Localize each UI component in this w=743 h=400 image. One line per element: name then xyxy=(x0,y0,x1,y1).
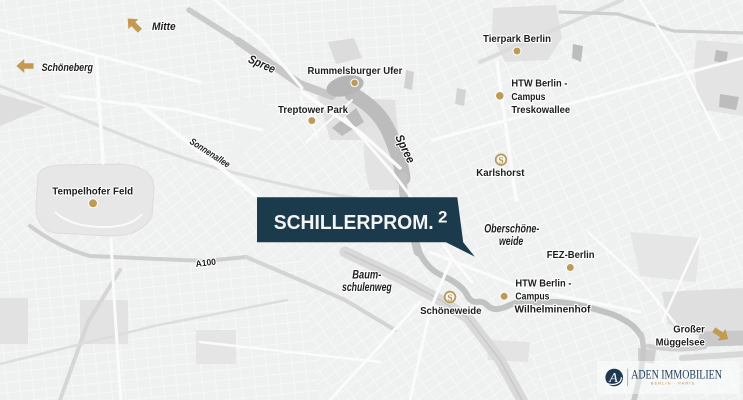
svg-text:Baum-: Baum- xyxy=(352,267,381,281)
svg-text:2: 2 xyxy=(438,208,447,227)
svg-text:Mitte: Mitte xyxy=(152,21,176,33)
svg-text:Campus: Campus xyxy=(511,92,545,103)
svg-text:S: S xyxy=(498,157,503,167)
svg-text:schulenweg: schulenweg xyxy=(342,280,392,294)
svg-text:Tempelhofer Feld: Tempelhofer Feld xyxy=(52,187,133,198)
svg-text:BERLIN · PARIS: BERLIN · PARIS xyxy=(651,381,695,386)
svg-text:ADEN IMMOBILIEN: ADEN IMMOBILIEN xyxy=(631,368,722,382)
svg-text:Treptower Park: Treptower Park xyxy=(278,105,348,116)
svg-text:Wilhelminenhof: Wilhelminenhof xyxy=(515,305,592,316)
svg-text:FEZ-Berlin: FEZ-Berlin xyxy=(547,250,595,261)
svg-text:SCHILLERPROM.: SCHILLERPROM. xyxy=(274,212,434,234)
svg-text:HTW Berlin -: HTW Berlin - xyxy=(511,79,567,90)
svg-text:weide: weide xyxy=(499,234,524,248)
svg-text:Rummelsburger Ufer: Rummelsburger Ufer xyxy=(308,66,403,77)
svg-text:Müggelsee: Müggelsee xyxy=(656,338,706,349)
svg-text:Großer: Großer xyxy=(673,324,705,335)
svg-text:HTW Berlin -: HTW Berlin - xyxy=(515,279,571,290)
svg-text:Schöneberg: Schöneberg xyxy=(42,62,94,74)
svg-text:Karlshorst: Karlshorst xyxy=(476,168,525,179)
svg-text:S: S xyxy=(447,294,452,304)
svg-text:Tierpark Berlin: Tierpark Berlin xyxy=(483,34,551,45)
svg-text:Schöneweide: Schöneweide xyxy=(420,306,482,317)
svg-text:Treskowallee: Treskowallee xyxy=(511,105,570,116)
svg-text:Campus: Campus xyxy=(515,292,549,303)
